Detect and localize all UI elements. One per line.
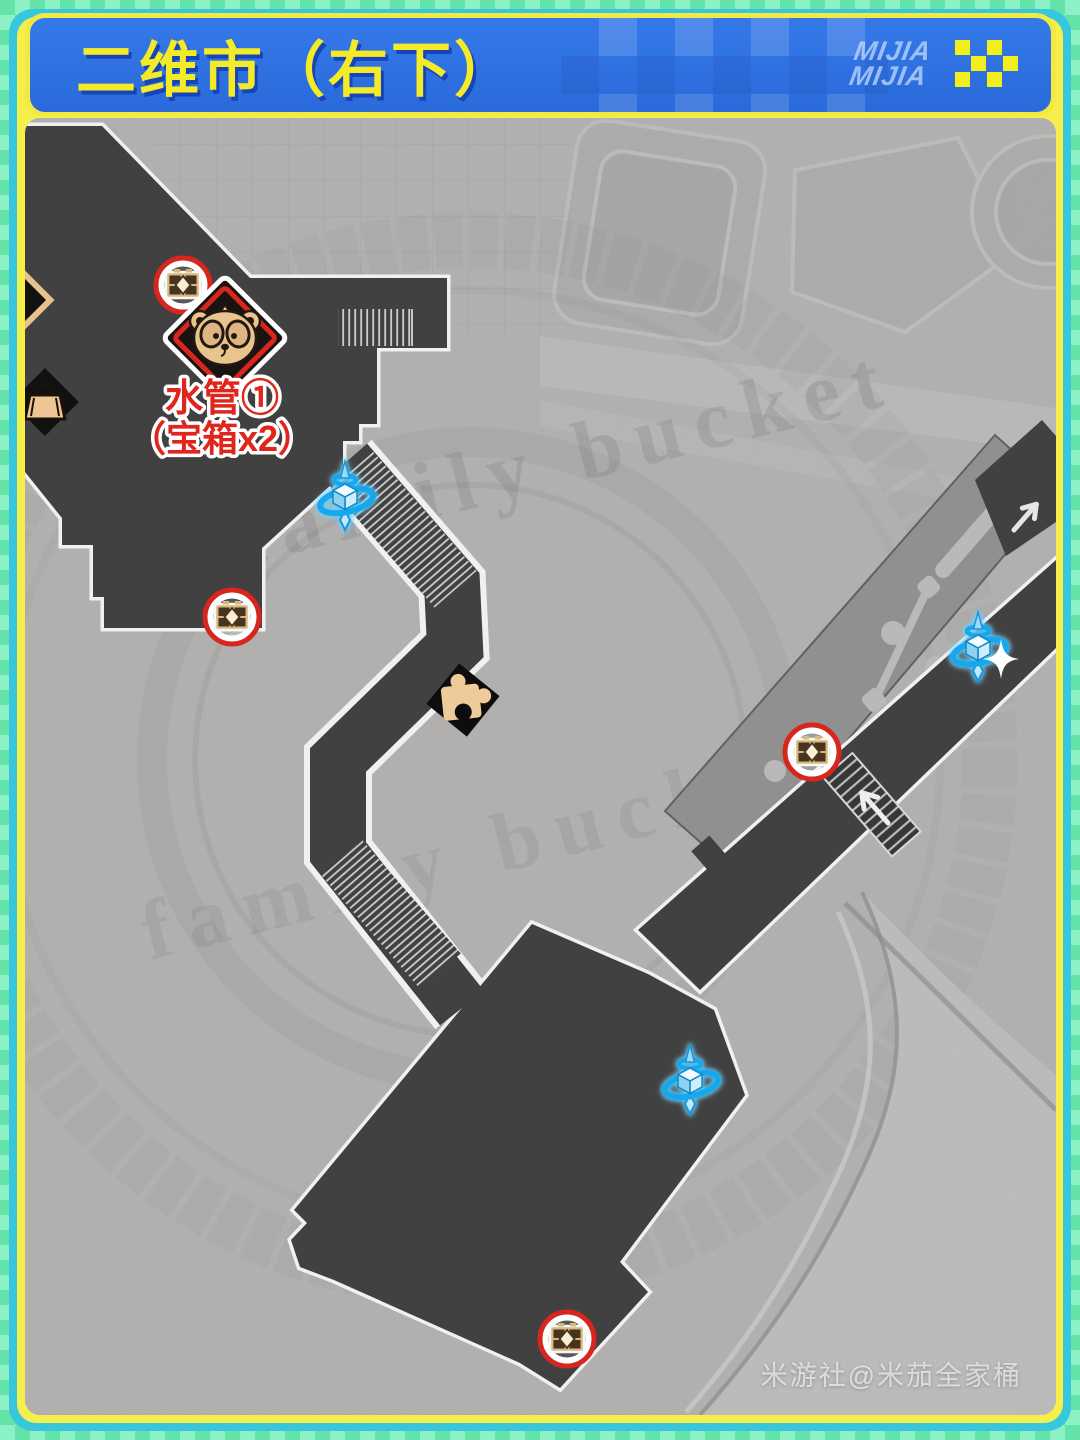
treasure-chest-marker-3[interactable] (785, 725, 839, 779)
guide-page: { "page": { "outer_green": "#63e3a8", "o… (0, 0, 1080, 1440)
label-pipe-line2: （宝箱x2） (130, 418, 314, 459)
map-viewport[interactable]: family bucket family bucket (25, 118, 1056, 1415)
treasure-chest-marker-2[interactable] (205, 590, 259, 644)
label-pipe-line1: 水管① (165, 378, 279, 420)
page-title: 二维市（右下） (76, 22, 517, 109)
pixel-flower-icon (955, 40, 1021, 90)
brand-logo-line2: MIJIA (848, 64, 929, 89)
treasure-chest-marker-4[interactable] (540, 1312, 594, 1366)
credit-watermark: 米游社@米茄全家桶 (761, 1354, 1022, 1393)
map-canvas: family bucket family bucket (25, 118, 1056, 1415)
brand-logo: MIJIA MIJIA (848, 39, 934, 89)
raccoon-face-icon (190, 305, 260, 365)
header-bar: 二维市（右下） MIJIA MIJIA (25, 13, 1056, 117)
header-checker-decor (561, 18, 888, 112)
